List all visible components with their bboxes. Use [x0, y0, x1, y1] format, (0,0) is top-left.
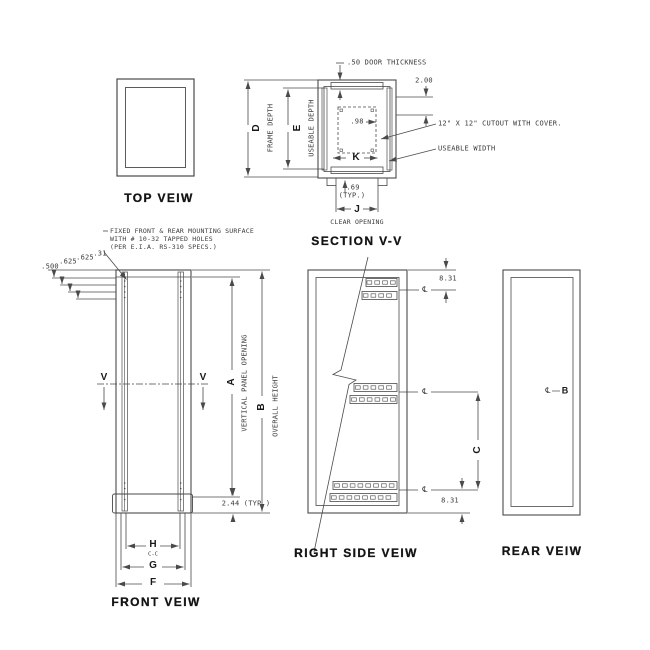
right-side-view-dimensions	[399, 258, 478, 524]
centerline-symbol-mid: ℄	[422, 388, 427, 396]
useable-width-label: USEABLE WIDTH	[438, 146, 495, 153]
rear-view-title: REAR VEIW	[502, 545, 583, 557]
j-letter: J	[354, 205, 360, 215]
mounting-note-line2: WITH # 10-32 TAPPED HOLES	[110, 236, 213, 243]
front-view-dimensions	[48, 231, 270, 587]
right-side-view-title: RIGHT SIDE VEIW	[294, 547, 418, 559]
b-letter: B	[257, 403, 267, 410]
vertical-panel-opening-label: VERTICAL PANEL OPENING	[242, 334, 249, 431]
mounting-note-line3: (PER E.I.A. RS-310 SPECS.)	[110, 244, 217, 251]
engineering-drawing-sheet: TOP VEIW D FRAME DEPTH E USEABLE DEPTH .…	[0, 0, 650, 650]
rs-dim-bottom: 8.31	[441, 498, 459, 505]
useable-depth-label: USEABLE DEPTH	[309, 99, 316, 156]
front-view-title: FRONT VEIW	[111, 596, 200, 608]
dim-2-00: 2.00	[415, 78, 433, 85]
e-letter: E	[293, 125, 303, 132]
h-letter: H	[149, 540, 156, 550]
rs-dim-top: 8.31	[439, 276, 457, 283]
dim-244-typ: 2.44 (TYP.)	[222, 501, 271, 508]
rear-centerline-symbol: ℄	[545, 387, 550, 395]
door-thickness-note: .50 DOOR THICKNESS	[347, 60, 426, 67]
dim-31: .31	[93, 251, 106, 258]
section-marker-v-left: V	[101, 373, 108, 383]
cc-label: C-C	[148, 552, 158, 558]
top-view-title: TOP VEIW	[124, 192, 193, 204]
dim-500: .500	[41, 264, 59, 271]
rear-b-letter: B	[562, 387, 569, 396]
overall-height-label: OVERALL HEIGHT	[273, 375, 280, 437]
section-view-title: SECTION V-V	[311, 235, 402, 247]
dim-69-typ: (TYP.)	[339, 193, 366, 200]
f-letter: F	[150, 578, 156, 588]
dim-98: .98	[350, 119, 363, 126]
centerline-symbol-top: ℄	[422, 286, 427, 294]
dim-69: .69	[346, 185, 359, 192]
c-letter: C	[473, 446, 483, 453]
front-view-mounting-holes	[124, 280, 182, 500]
centerline-symbol-bottom: ℄	[422, 486, 427, 494]
dim-625-a: .625	[59, 259, 77, 266]
break-line	[314, 257, 368, 552]
clear-opening-label: CLEAR OPENING	[330, 219, 383, 226]
g-letter: G	[149, 561, 157, 571]
right-side-view-rails	[330, 279, 397, 502]
mounting-note-line1: FIXED FRONT & REAR MOUNTING SURFACE	[110, 228, 254, 235]
front-view-outline	[113, 270, 193, 513]
cutout-dashed-outline	[338, 107, 376, 153]
cutout-note: 12" X 12" CUTOUT WITH COVER.	[438, 121, 562, 128]
section-marker-v-right: V	[200, 373, 207, 383]
frame-depth-label: FRAME DEPTH	[268, 104, 275, 153]
top-view-outline	[117, 79, 194, 176]
k-letter: K	[352, 153, 359, 163]
d-letter: D	[252, 124, 262, 131]
a-letter: A	[227, 378, 237, 385]
dim-625-b: .625	[76, 255, 94, 262]
